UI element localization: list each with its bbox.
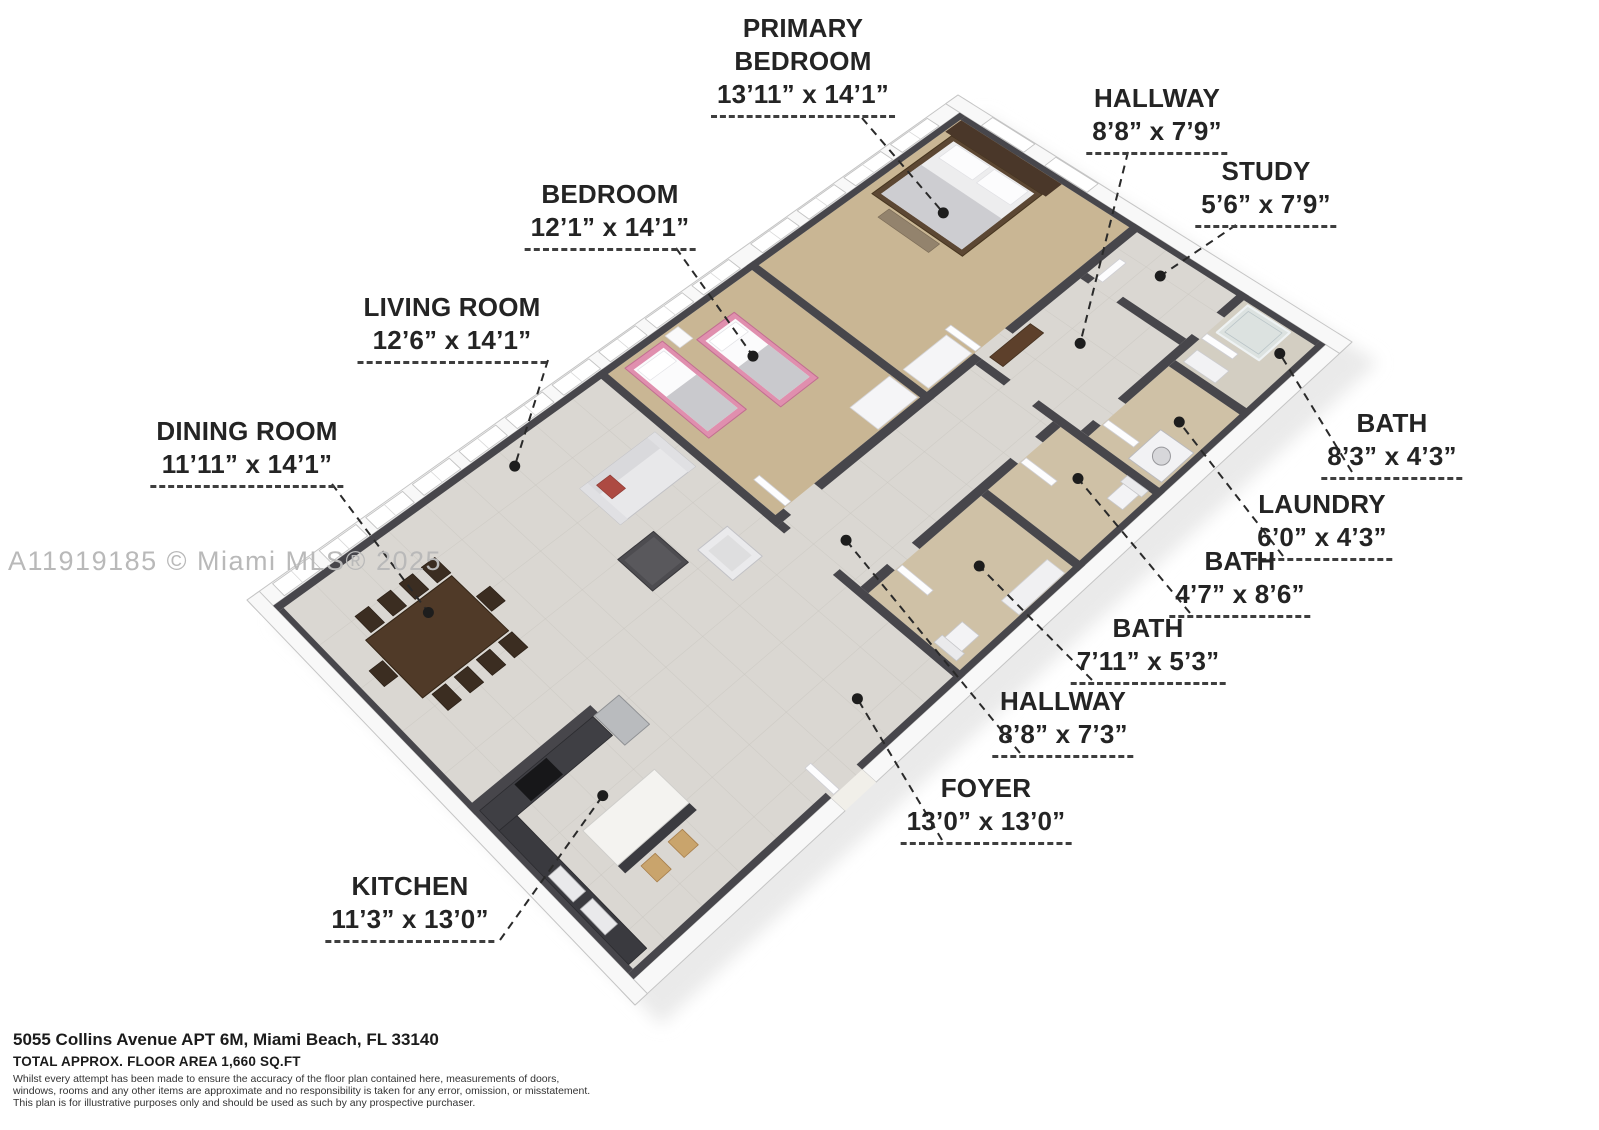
room-dims: 8’8” x 7’9” [1092, 115, 1221, 148]
leader-dot-study [1155, 271, 1166, 282]
room-dims: 8’8” x 7’3” [998, 718, 1127, 751]
room-dims: 11’11” x 14’1” [156, 448, 337, 481]
room-name: FOYER [907, 772, 1066, 805]
property-address: 5055 Collins Avenue APT 6M, Miami Beach,… [13, 1030, 590, 1050]
room-label-bedroom: BEDROOM12’1” x 14’1” [525, 178, 696, 251]
leader-dot-foyer [852, 693, 863, 704]
room-dims: 8’3” x 4’3” [1327, 440, 1456, 473]
room-name: LAUNDRY [1257, 488, 1386, 521]
room-name: BEDROOM [531, 178, 690, 211]
leader-dot-laundry [1174, 417, 1185, 428]
leader-dot-dining-room [423, 607, 434, 618]
room-label-bath-lower: BATH7’11” x 5’3” [1071, 612, 1226, 685]
room-name: BATH [1327, 407, 1456, 440]
room-name: KITCHEN [331, 870, 488, 903]
room-name: DINING ROOM [156, 415, 337, 448]
footer: 5055 Collins Avenue APT 6M, Miami Beach,… [13, 1030, 590, 1109]
room-label-bath-mid: BATH4’7” x 8’6” [1169, 545, 1310, 618]
room-dims: 7’11” x 5’3” [1077, 645, 1220, 678]
room-name: HALLWAY [998, 685, 1127, 718]
leader-dot-bath-corner [1274, 348, 1285, 359]
room-name: PRIMARY [717, 12, 889, 45]
room-label-kitchen: KITCHEN11’3” x 13’0” [325, 870, 494, 943]
room-label-foyer: FOYER13’0” x 13’0” [901, 772, 1072, 845]
room-dims: 12’6” x 14’1” [364, 324, 541, 357]
leader-dot-living-room [509, 461, 520, 472]
room-name: BATH [1175, 545, 1304, 578]
room-dims: 13’11” x 14’1” [717, 78, 889, 111]
room-label-hallway-upper: HALLWAY8’8” x 7’9” [1086, 82, 1227, 155]
leader-dot-bedroom [747, 351, 758, 362]
leader-dot-hallway-upper [1075, 338, 1086, 349]
leader-dot-kitchen [597, 790, 608, 801]
room-label-dining-room: DINING ROOM11’11” x 14’1” [150, 415, 343, 488]
disclaimer-line: windows, rooms and any other items are a… [13, 1086, 590, 1098]
leader-dot-primary-bedroom [938, 207, 949, 218]
room-dims: 5’6” x 7’9” [1201, 188, 1330, 221]
room-dims: 11’3” x 13’0” [331, 903, 488, 936]
mls-watermark: A11919185 © Miami MLS® 2025 [8, 546, 442, 577]
room-name: STUDY [1201, 155, 1330, 188]
room-name: BATH [1077, 612, 1220, 645]
room-name: LIVING ROOM [364, 291, 541, 324]
room-label-primary-bedroom: PRIMARYBEDROOM13’11” x 14’1” [711, 12, 895, 118]
room-label-study: STUDY5’6” x 7’9” [1195, 155, 1336, 228]
room-dims: 13’0” x 13’0” [907, 805, 1066, 838]
floorplan-page: { "watermark": "A11919185 © Miami MLS® 2… [0, 0, 1599, 1130]
room-dims: 12’1” x 14’1” [531, 211, 690, 244]
room-name: BEDROOM [717, 45, 889, 78]
room-label-living-room: LIVING ROOM12’6” x 14’1” [358, 291, 547, 364]
floor-area-total: TOTAL APPROX. FLOOR AREA 1,660 SQ.FT [13, 1054, 590, 1069]
room-label-bath-corner: BATH8’3” x 4’3” [1321, 407, 1462, 480]
disclaimer: Whilst every attempt has been made to en… [13, 1074, 590, 1109]
room-dims: 4’7” x 8’6” [1175, 578, 1304, 611]
room-label-hallway-lower: HALLWAY8’8” x 7’3” [992, 685, 1133, 758]
leader-dot-bath-lower [974, 561, 985, 572]
room-name: HALLWAY [1092, 82, 1221, 115]
leader-dot-bath-mid [1072, 473, 1083, 484]
disclaimer-line: This plan is for illustrative purposes o… [13, 1098, 590, 1110]
leader-dot-hallway-lower [841, 535, 852, 546]
washer-door [1152, 447, 1170, 465]
